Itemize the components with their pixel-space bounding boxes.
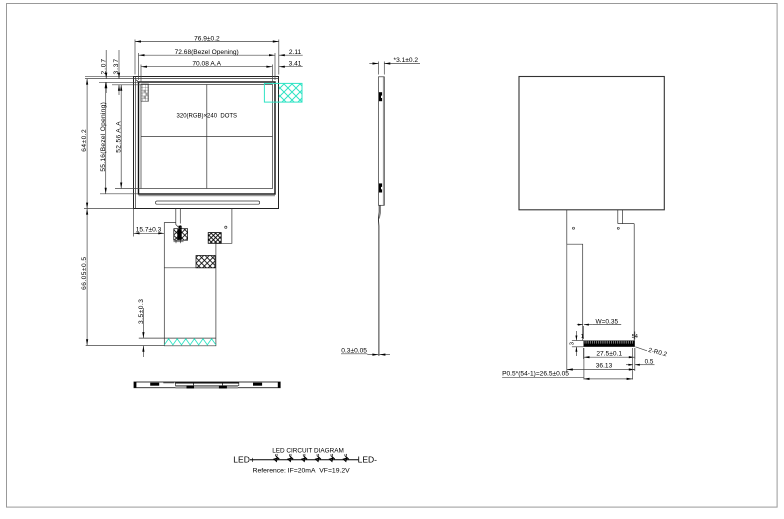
svg-text:0.3±0.05: 0.3±0.05: [341, 347, 367, 354]
svg-text:320(RGB)×240 DOTS: 320(RGB)×240 DOTS: [177, 113, 238, 119]
svg-text:*3.1±0.2: *3.1±0.2: [394, 57, 419, 64]
svg-text:66.05±0.5: 66.05±0.5: [81, 257, 88, 290]
svg-text:3: 3: [569, 342, 575, 345]
svg-text:52.56 A.A: 52.56 A.A: [115, 121, 122, 153]
svg-text:P0.5*(54-1)=26.5±0.05: P0.5*(54-1)=26.5±0.05: [502, 371, 569, 378]
svg-text:36.13: 36.13: [596, 363, 613, 370]
svg-text:3.41: 3.41: [289, 61, 302, 68]
svg-text:2.07: 2.07: [100, 58, 107, 74]
svg-text:LED+: LED+: [233, 454, 255, 464]
svg-text:2.11: 2.11: [289, 49, 302, 56]
svg-text:2-R0.2: 2-R0.2: [648, 347, 669, 358]
svg-text:27.5±0.1: 27.5±0.1: [596, 350, 622, 357]
svg-text:15.7±0.3: 15.7±0.3: [136, 227, 162, 234]
svg-text:55.16(Bezel Opening): 55.16(Bezel Opening): [100, 102, 107, 172]
svg-text:72.68(Bezel Opening): 72.68(Bezel Opening): [175, 49, 239, 56]
svg-text:76.9±0.2: 76.9±0.2: [194, 35, 220, 42]
svg-text:LED-: LED-: [358, 454, 378, 464]
svg-text:64±0.2: 64±0.2: [81, 129, 88, 152]
svg-text:LED CIRCUIT DIAGRAM: LED CIRCUIT DIAGRAM: [272, 448, 344, 455]
svg-text:Reference: IF=20mA VF=19.2V: Reference: IF=20mA VF=19.2V: [253, 468, 351, 475]
svg-text:3.37: 3.37: [113, 58, 120, 74]
svg-text:3.5±0.3: 3.5±0.3: [138, 299, 145, 324]
svg-text:70.08 A.A: 70.08 A.A: [192, 61, 221, 68]
